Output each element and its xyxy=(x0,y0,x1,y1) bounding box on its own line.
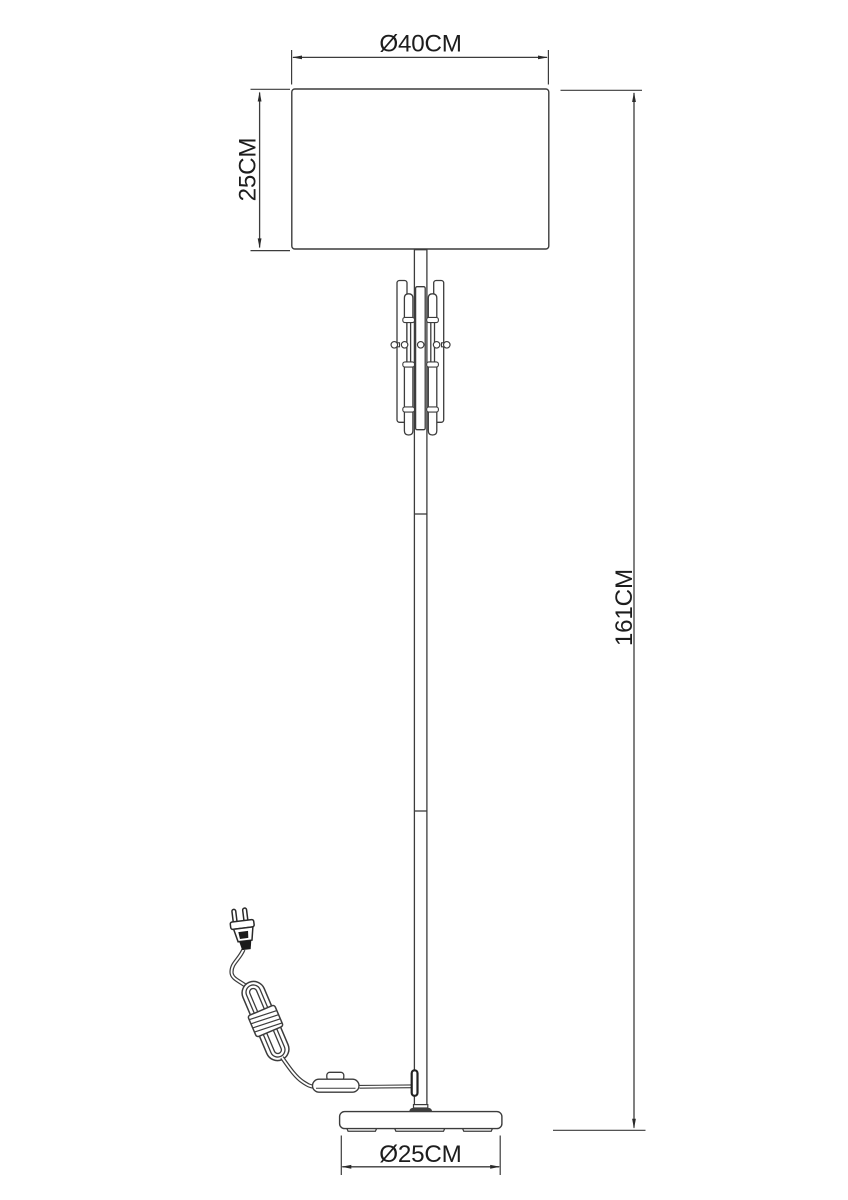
svg-text:Ø40CM: Ø40CM xyxy=(379,31,461,58)
svg-text:Ø25CM: Ø25CM xyxy=(379,1141,461,1168)
svg-text:25CM: 25CM xyxy=(234,138,261,202)
